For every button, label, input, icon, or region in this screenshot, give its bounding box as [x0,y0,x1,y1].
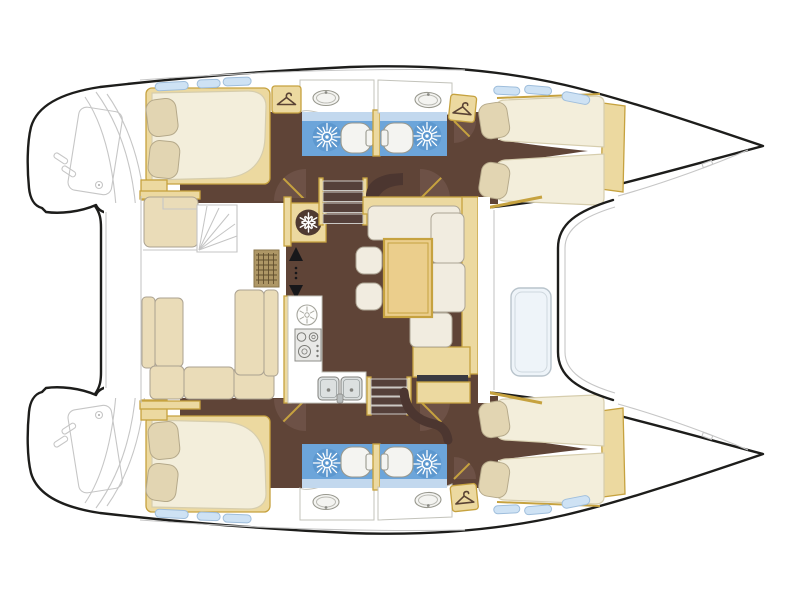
bench-seat-cushion [235,290,264,375]
stool [356,283,382,310]
bench-back-cushion [264,290,278,376]
settee-cushion [431,213,464,263]
hanging-locker [448,94,477,123]
settee-base [413,347,470,377]
bench-back-cushion [142,297,155,368]
foredeck-hatch [511,288,551,376]
settee-cushion [410,313,452,347]
cabinet-trim [417,375,468,382]
cabinet [417,382,470,403]
faucet [337,394,343,403]
hanging-locker [272,86,301,113]
cockpit-grating [254,250,279,287]
yacht-floorplan-canvas [0,0,800,600]
bench-seat-cushion [155,298,183,367]
helm-steps [197,205,237,252]
companionway-stairs-top [319,178,367,225]
helm-seat [144,197,198,247]
stove-icon [295,329,321,361]
dining-table [384,239,432,317]
bench-corner-cushion [150,366,184,399]
salon-aft-wall [284,197,291,246]
hanging-locker [450,483,479,512]
stool [356,247,382,274]
bench-seat-cushion [184,367,234,399]
settee-cushion [429,263,465,312]
floorplan-drawing [0,0,800,600]
salon [284,173,478,440]
